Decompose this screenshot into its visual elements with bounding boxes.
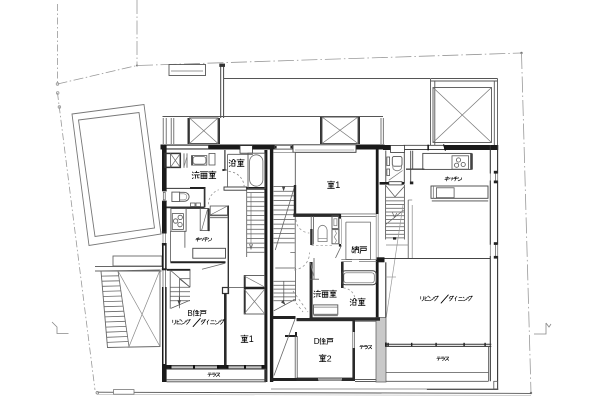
- svg-text:B: B: [188, 309, 193, 318]
- svg-text:2: 2: [327, 353, 332, 363]
- svg-text:1: 1: [249, 334, 254, 344]
- svg-text:D: D: [314, 337, 320, 346]
- svg-text:1: 1: [335, 180, 340, 190]
